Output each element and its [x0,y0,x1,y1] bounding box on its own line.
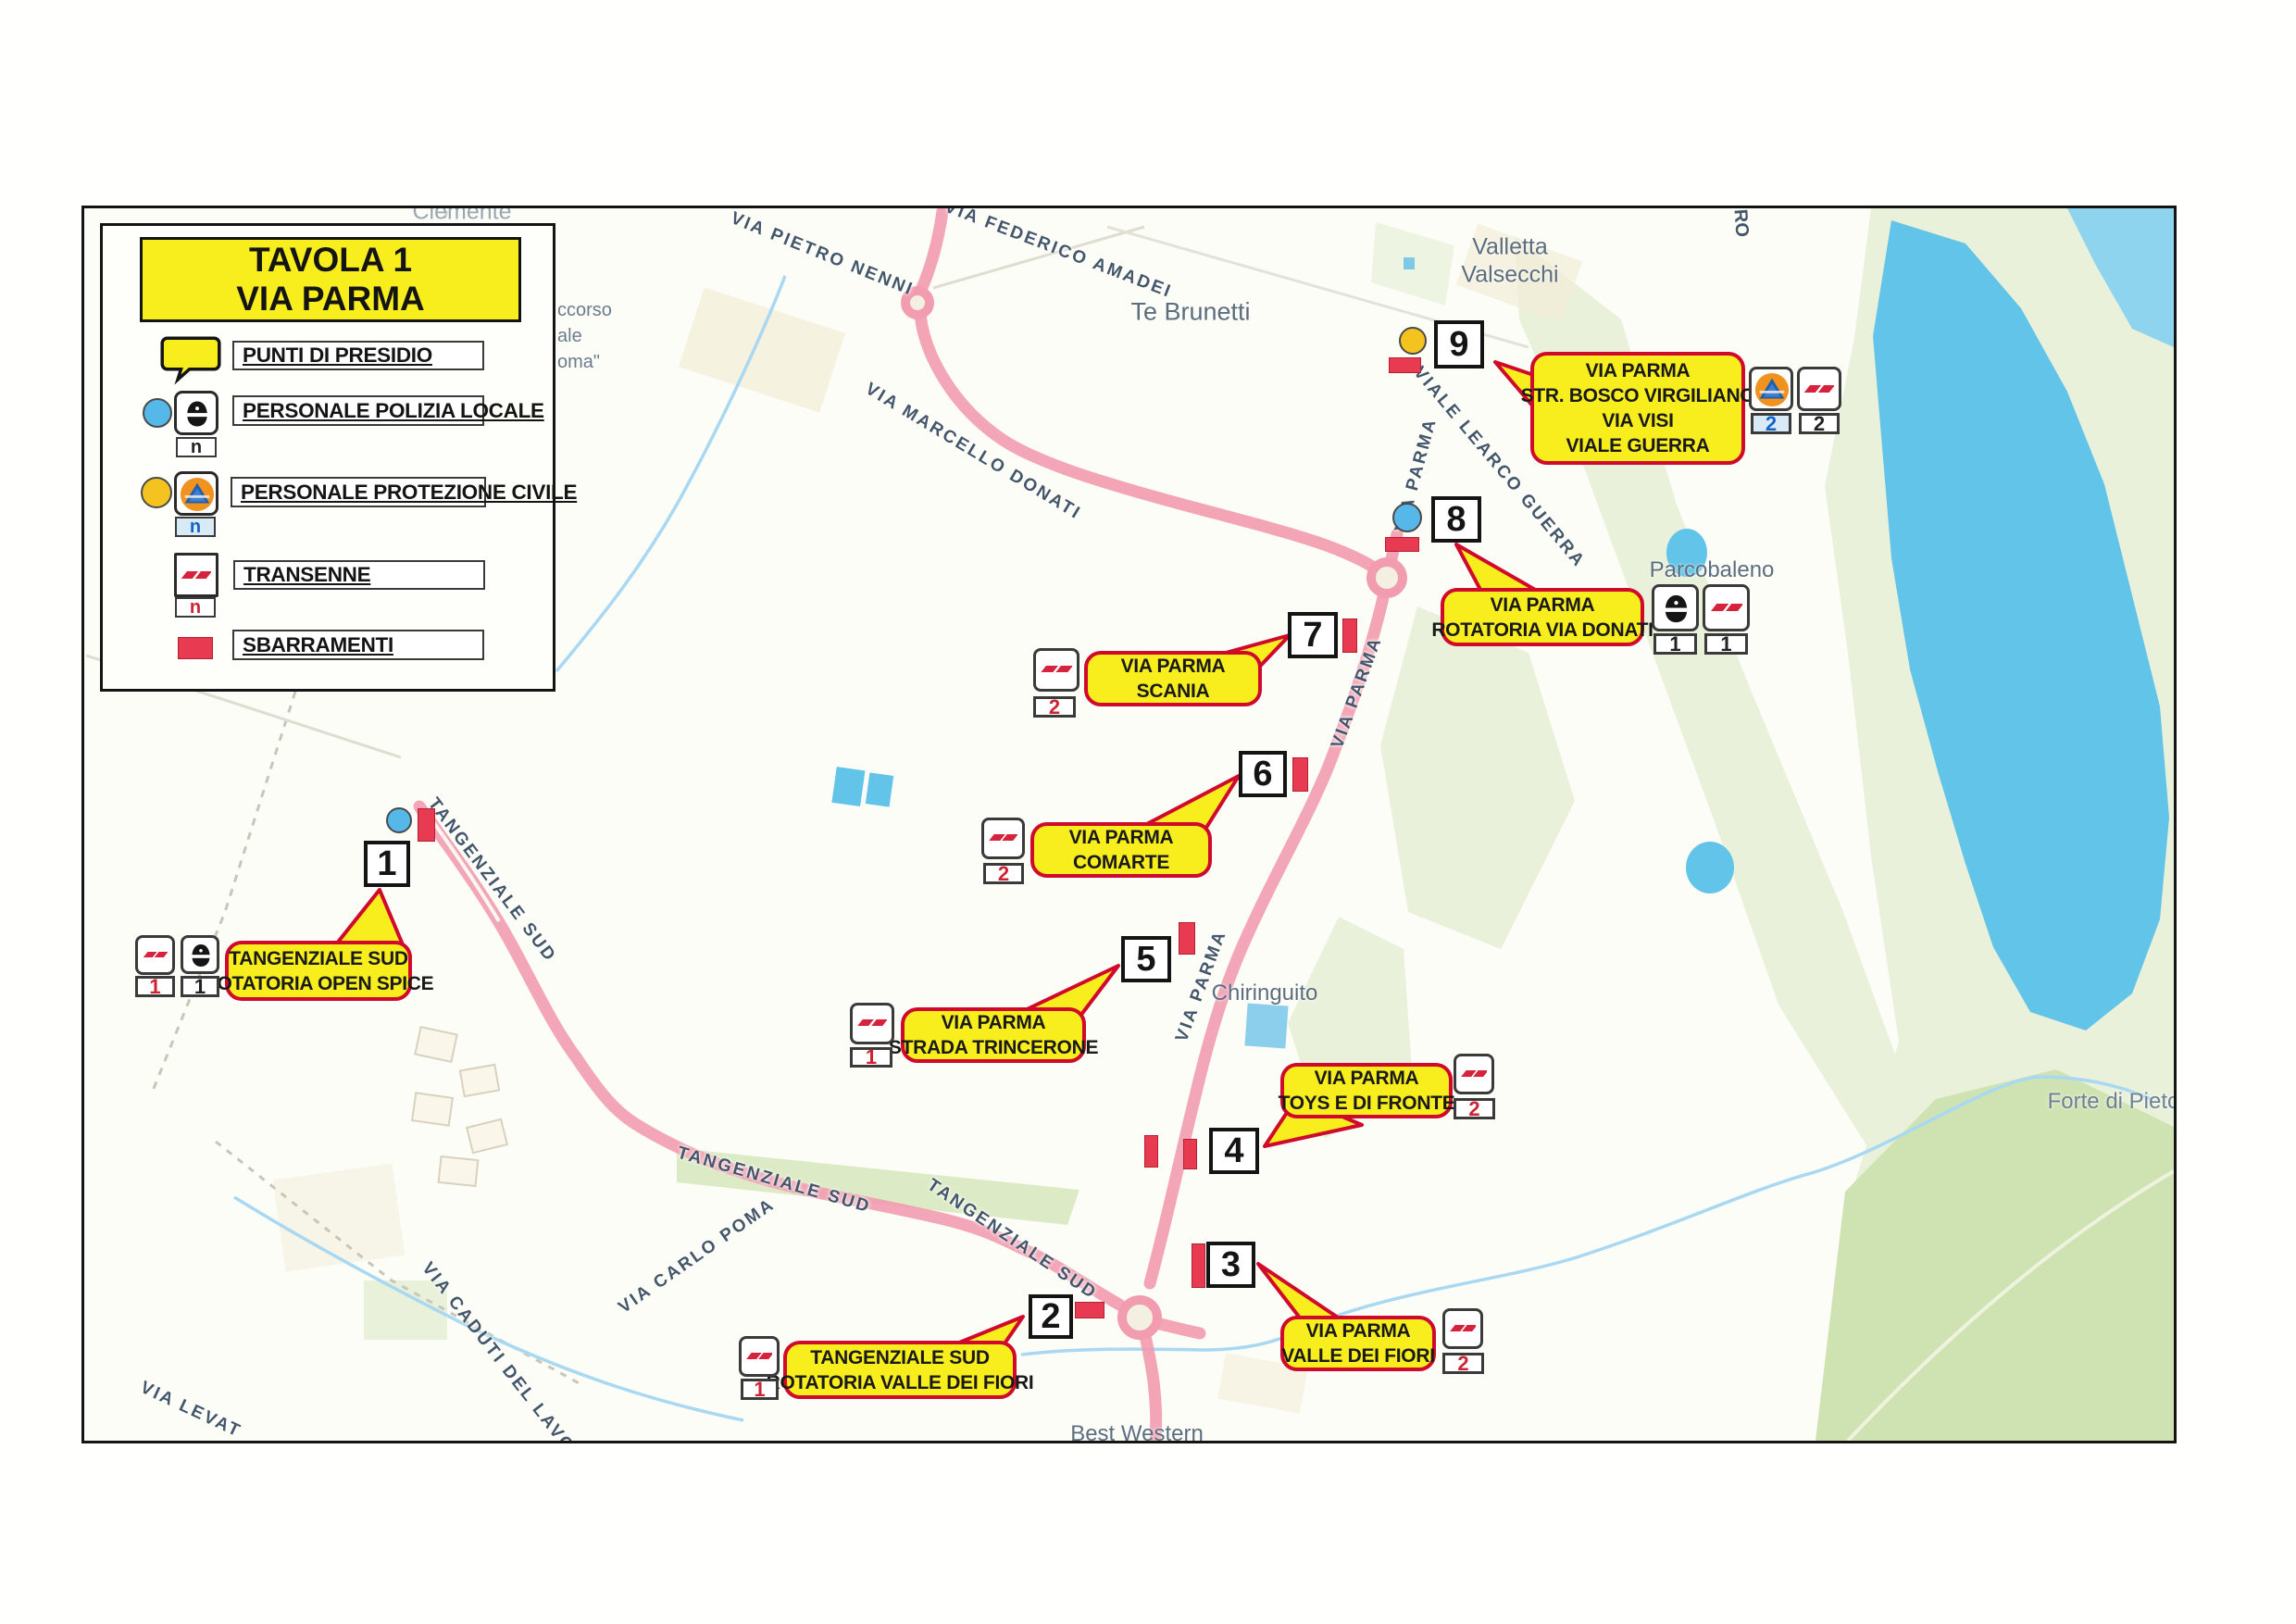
pond [1404,257,1415,269]
legend-label-sbarramenti: SBARRAMENTI [232,630,484,660]
police-icon [1652,584,1699,631]
legend-title-line2: VIA PARMA [236,280,425,319]
clipped-text-block: ccorso ale oma" [557,297,612,375]
barrier-bar-4a [1144,1135,1158,1168]
transenne-icon [174,553,218,597]
pond [866,772,893,806]
barrier-bar-4b [1183,1139,1197,1169]
callout-point-2: TANGENZIALE SUD ROTATORIA VALLE DEI FIOR… [783,1341,1017,1399]
road-via-nenni [921,211,942,290]
callout-line: TANGENZIALE SUD [810,1345,989,1370]
place-label-forte: Forte di Pieto [2048,1089,2177,1115]
barrier-stripes-icon [1710,592,1742,624]
callout-line: SCANIA [1137,679,1210,704]
place-label-te-brunetti: Te Brunetti [1130,298,1250,327]
faint-road [216,1142,584,1386]
legend-label-punti: PUNTI DI PRESIDIO [232,341,484,370]
transenne-icon [1033,648,1079,692]
barrier-bar-6 [1292,757,1308,792]
transenne-icon [1442,1308,1483,1349]
transenne-icon [739,1336,780,1377]
callout-line: VIA VISI [1602,408,1673,433]
civil-protection-marker-9 [1399,327,1427,355]
callout-line: VIA PARMA [1315,1066,1419,1091]
police-count-8: 1 [1653,633,1697,655]
civil-protection-icon [174,471,218,516]
pond [831,767,865,806]
police-marker-1 [386,807,412,833]
legend-label-transenne: TRANSENNE [233,560,485,590]
transenne-count-5: 1 [850,1047,892,1068]
transenne-count-4: 2 [1454,1098,1495,1119]
police-icon [181,935,219,974]
civil-protection-icon [1749,367,1793,411]
barrier-stripes-icon [857,1010,887,1037]
callout-line: VIA PARMA [1069,825,1174,850]
transenne-icon [850,1003,894,1044]
callout-line: TANGENZIALE SUD [229,946,407,971]
barrier-bar-8 [1385,537,1419,552]
place-label-chiringuito: Chiringuito [1212,981,1318,1006]
callout-line: VIA PARMA [942,1010,1046,1035]
callout-point-7: VIA PARMA SCANIA [1084,651,1262,706]
legend-panel: TAVOLA 1 VIA PARMA PUNTI DI PRESIDIO n P… [100,223,555,692]
transenne-icon [1797,367,1841,411]
legend-label-protezione: PERSONALE PROTEZIONE CIVILE [231,477,486,507]
transenne-count-3: 2 [1442,1353,1484,1374]
pond-chiringuito [1244,1004,1288,1049]
barrier-stripes-icon [1461,1061,1487,1087]
point-number-5: 5 [1121,936,1171,982]
barrier-stripes-icon [181,560,211,590]
point-number-1: 1 [364,841,410,887]
road-via-donati [920,315,1377,569]
place-label-parcobaleno: Parcobaleno [1650,557,1775,583]
transenne-count-2: 1 [741,1379,779,1400]
callout-point-9: VIA PARMA STR. BOSCO VIRGILIANO VIA VISI… [1530,352,1745,465]
police-helmet-icon [181,397,214,431]
police-marker-8 [1392,503,1422,532]
civil-protection-logo-icon [1754,372,1790,407]
callout-point-5: VIA PARMA STRADA TRINCERONE [901,1007,1086,1063]
presidio-bubble-icon [158,335,223,385]
barrier-bar-1 [418,808,435,842]
legend-title-line1: TAVOLA 1 [249,241,412,280]
callout-line: COMARTE [1073,850,1169,875]
callout-point-4: VIA PARMA TOYS E DI FRONTE [1280,1063,1453,1118]
callout-line: TOYS E DI FRONTE [1279,1091,1455,1116]
place-label-best-western: Best Western [1070,1421,1204,1443]
green-area-viaparma-east [1380,606,1575,949]
clipped-text-line: ale [557,323,612,349]
barrier-bar-7 [1342,618,1357,653]
place-label-valsecchi: Valsecchi [1461,262,1558,289]
civil-protection-logo-icon [180,477,215,512]
callout-line: ROTATORIA VIA DONATI [1431,618,1653,643]
callout-point-8: VIA PARMA ROTATORIA VIA DONATI [1441,588,1644,646]
callout-line: ROTATORIA OPEN SPICE [204,971,434,996]
place-label-valletta: Valletta [1472,234,1548,261]
police-count-1: 1 [181,976,219,997]
callout-line: VALLE DEI FIORI [1281,1343,1434,1368]
police-marker-icon [143,398,172,428]
callout-line: VIA PARMA [1306,1318,1411,1343]
barrier-bar-2 [1075,1302,1104,1318]
barrier-bar-icon [178,637,213,659]
point-number-2: 2 [1029,1294,1073,1339]
point-number-8: 8 [1431,496,1481,543]
scanned-map-page: VIA PIETRO NENNI VIA FEDERICO AMADEI VIA… [0,0,2296,1624]
map-canvas: VIA PIETRO NENNI VIA FEDERICO AMADEI VIA… [81,206,2177,1443]
barrier-bar-9 [1389,357,1421,373]
point-number-4: 4 [1209,1128,1259,1174]
transenne-count-1: 1 [135,976,175,997]
building-outlines [412,1027,507,1186]
clipped-text-line: oma" [557,349,612,375]
barrier-bar-5 [1179,922,1195,955]
legend-title: TAVOLA 1 VIA PARMA [140,237,521,322]
road-east-stub [1156,1323,1200,1333]
callout-line: ROTATORIA VALLE DEI FIORI [767,1370,1034,1395]
transenne-icon [1703,584,1750,631]
legend-label-polizia: PERSONALE POLIZIA LOCALE [232,395,484,426]
barrier-stripes-icon [1041,656,1072,684]
barrier-stripes-icon [143,943,168,968]
callout-line: STRADA TRINCERONE [889,1035,1098,1060]
building-cluster [273,1163,406,1271]
barrier-stripes-icon [1450,1316,1476,1342]
police-helmet-icon [1658,591,1694,627]
pond [1686,842,1734,893]
civil-protection-marker-icon [141,477,172,508]
transenne-icon [981,818,1025,859]
transenne-icon [1454,1054,1494,1094]
transenne-count-8: 1 [1704,633,1748,655]
legend-count-polizia: n [176,437,217,457]
barrier-stripes-icon [1804,374,1834,404]
barrier-bar-3 [1192,1243,1205,1288]
police-icon [174,391,218,435]
point-number-9: 9 [1434,320,1484,369]
callout-point-3: VIA PARMA VALLE DEI FIORI [1280,1316,1436,1371]
point-number-6: 6 [1239,751,1287,797]
clipped-text-line: ccorso [557,297,612,323]
transenne-count-9: 2 [1799,413,1840,434]
transenne-count-6: 2 [983,863,1024,884]
callout-line: VIALE GUERRA [1566,433,1709,458]
legend-count-protezione: n [175,517,216,537]
callout-line: VIA PARMA [1491,593,1595,618]
point-number-7: 7 [1288,612,1338,658]
street-label-partial-ro: RO [1728,208,1752,238]
transenne-count-7: 2 [1033,696,1076,718]
barrier-stripes-icon [746,1343,772,1369]
callout-line: STR. BOSCO VIRGILIANO [1521,383,1755,408]
point-number-3: 3 [1206,1242,1255,1288]
transenne-icon [135,935,175,975]
callout-point-1: TANGENZIALE SUD ROTATORIA OPEN SPICE [225,941,412,1001]
legend-count-transenne: n [175,597,216,618]
callout-line: VIA PARMA [1586,358,1691,383]
police-helmet-icon [186,941,216,970]
civil-protection-count-9: 2 [1751,413,1791,434]
callout-point-6: VIA PARMA COMARTE [1030,822,1212,878]
building-cluster [679,287,845,412]
callout-line: VIA PARMA [1121,654,1226,679]
barrier-stripes-icon [989,825,1017,852]
